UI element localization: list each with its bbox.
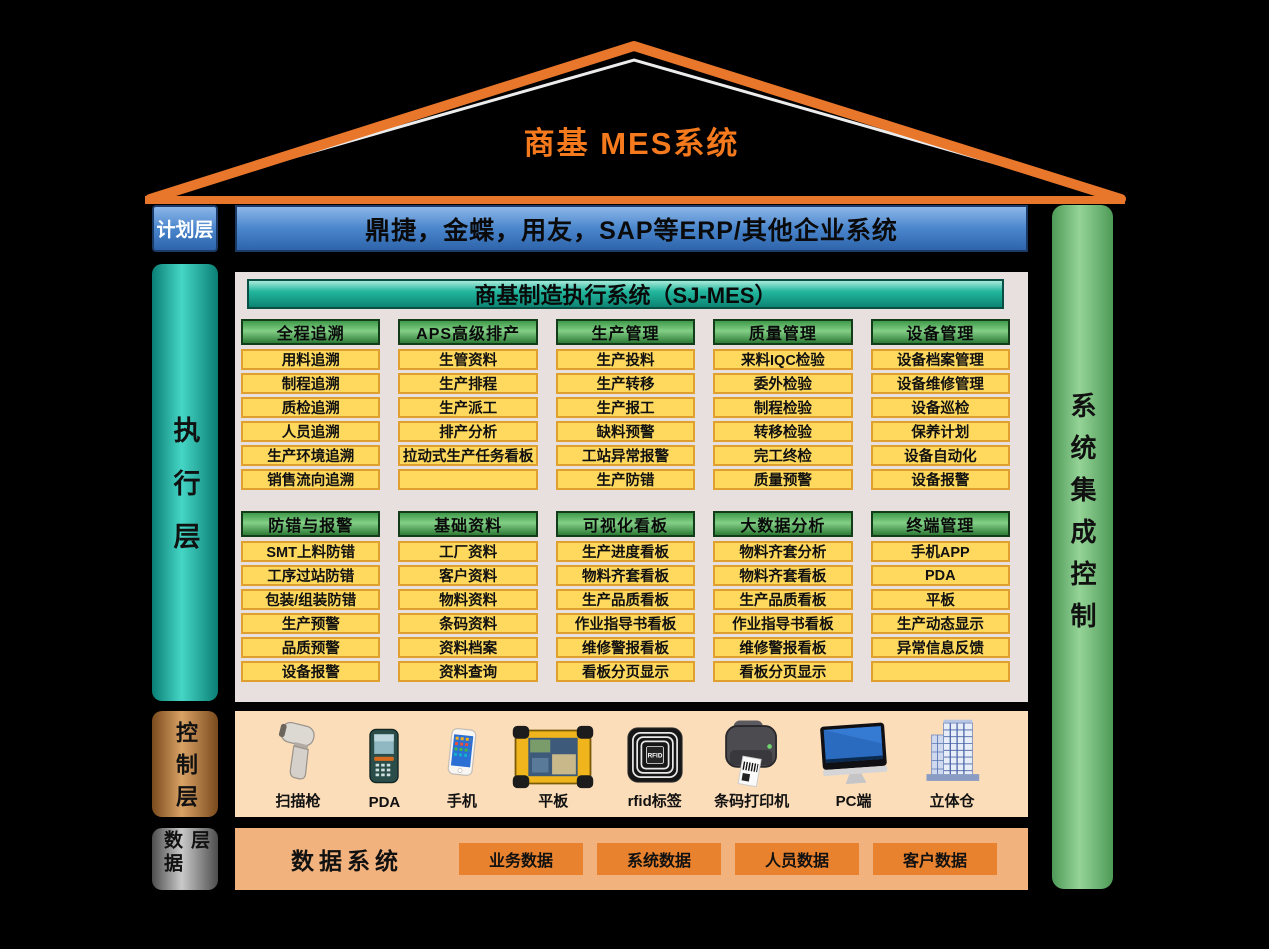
module-item: 来料IQC检验 [713,349,852,370]
module-item: 条码资料 [398,613,537,634]
module-item: 设备自动化 [871,445,1010,466]
rfid-icon: RFID [621,715,689,789]
diagram-title: 商基 MES系统 [235,118,1028,163]
data-system-row: 数据系统 业务数据 系统数据 人员数据 客户数据 [235,828,1028,890]
svg-text:RFID: RFID [647,753,662,760]
module-item: 生产排程 [398,373,537,394]
module-group-error-proofing: 防错与报警 SMT上料防错 工序过站防错 包装/组装防错 生产预警 品质预警 设… [241,511,380,685]
mes-architecture-diagram: 商基 MES系统 计划层 执行层 控制层 数据层 系统集成控制 鼎捷，金蝶，用友… [0,0,1269,949]
pda-icon [356,719,412,793]
module-item: 用料追溯 [241,349,380,370]
module-group-header: 全程追溯 [241,319,380,345]
module-item: 生产预警 [241,613,380,634]
erp-systems-bar: 鼎捷，金蝶，用友，SAP等ERP/其他企业系统 [235,205,1028,252]
module-item: 销售流向追溯 [241,469,380,490]
module-group-big-data: 大数据分析 物料齐套分析 物料齐套看板 生产品质看板 作业指导书看板 维修警报看… [713,511,852,685]
module-item: 设备巡检 [871,397,1010,418]
module-item: 完工终检 [713,445,852,466]
device-phone: 手机 [438,715,486,811]
barcode-printer-icon [715,715,789,789]
scanner-icon [265,715,331,789]
module-item: 客户资料 [398,565,537,586]
module-item: 物料齐套看板 [556,565,695,586]
module-item: 质检追溯 [241,397,380,418]
layer-control-text: 控制层 [169,721,201,817]
erp-systems-text: 鼎捷，金蝶，用友，SAP等ERP/其他企业系统 [365,211,898,247]
module-item: 维修警报看板 [713,637,852,658]
layer-execute-text: 执行层 [166,416,205,575]
data-system-title: 数据系统 [291,842,403,876]
module-group-header: 质量管理 [713,319,852,345]
module-item: 看板分页显示 [713,661,852,682]
data-box-business: 业务数据 [459,843,583,875]
module-item: 工厂资料 [398,541,537,562]
module-item: 生产进度看板 [556,541,695,562]
tablet-icon [511,715,595,789]
layer-data-text: 数据层 [158,830,212,892]
module-item: 生产防错 [556,469,695,490]
layer-data-label: 数据层 [152,828,218,890]
module-item: 设备报警 [871,469,1010,490]
module-item: 平板 [871,589,1010,610]
module-group-dashboards: 可视化看板 生产进度看板 物料齐套看板 生产品质看板 作业指导书看板 维修警报看… [556,511,695,685]
data-box-personnel: 人员数据 [735,843,859,875]
layer-plan-text: 计划层 [156,215,213,242]
module-item: 包装/组装防错 [241,589,380,610]
module-item: 工站异常报警 [556,445,695,466]
layer-execute-label: 执行层 [152,264,218,701]
module-item: 物料齐套分析 [713,541,852,562]
data-boxes: 业务数据 系统数据 人员数据 客户数据 [459,843,997,875]
module-item: 制程追溯 [241,373,380,394]
device-label: PDA [369,794,401,811]
module-group-production: 生产管理 生产投料 生产转移 生产报工 缺料预警 工站异常报警 生产防错 [556,319,695,493]
module-item: 委外检验 [713,373,852,394]
device-pc: PC端 [815,715,893,811]
module-item: 异常信息反馈 [871,637,1010,658]
system-integration-text: 系统集成控制 [1064,392,1101,644]
module-group-master-data: 基础资料 工厂资料 客户资料 物料资料 条码资料 资料档案 资料查询 [398,511,537,685]
module-item: 生产报工 [556,397,695,418]
module-item: 质量预警 [713,469,852,490]
module-item: 看板分页显示 [556,661,695,682]
module-item: 工序过站防错 [241,565,380,586]
module-item: 排产分析 [398,421,537,442]
pc-icon [815,715,893,789]
module-item: 拉动式生产任务看板 [398,445,537,466]
module-item: PDA [871,565,1010,586]
module-item: 维修警报看板 [556,637,695,658]
device-label: 立体仓 [929,790,974,811]
module-item: 人员追溯 [241,421,380,442]
module-item: 物料齐套看板 [713,565,852,586]
module-item: 手机APP [871,541,1010,562]
control-devices-row: 扫描枪 PDA [235,711,1028,817]
module-item: 制程检验 [713,397,852,418]
module-group-header: 防错与报警 [241,511,380,537]
device-label: 平板 [538,790,568,811]
device-warehouse: 立体仓 [918,715,986,811]
module-item: 生管资料 [398,349,537,370]
module-item: 转移检验 [713,421,852,442]
system-integration-bar: 系统集成控制 [1052,205,1113,889]
warehouse-icon [918,715,986,789]
module-item: 设备档案管理 [871,349,1010,370]
module-item [871,661,1010,682]
module-item: 作业指导书看板 [556,613,695,634]
module-item: 缺料预警 [556,421,695,442]
device-label: PC端 [836,790,872,811]
device-tablet: 平板 [511,715,595,811]
module-grid-row1: 全程追溯 用料追溯 制程追溯 质检追溯 人员追溯 生产环境追溯 销售流向追溯 A… [241,319,1010,493]
module-group-header: 基础资料 [398,511,537,537]
module-item: 作业指导书看板 [713,613,852,634]
module-group-header: 终端管理 [871,511,1010,537]
module-grid-row2: 防错与报警 SMT上料防错 工序过站防错 包装/组装防错 生产预警 品质预警 设… [241,511,1010,685]
layer-plan-label: 计划层 [152,205,218,252]
module-item: 设备维修管理 [871,373,1010,394]
module-item: 生产转移 [556,373,695,394]
module-group-header: 大数据分析 [713,511,852,537]
module-item: 生产动态显示 [871,613,1010,634]
data-box-system: 系统数据 [597,843,721,875]
module-group-quality: 质量管理 来料IQC检验 委外检验 制程检验 转移检验 完工终检 质量预警 [713,319,852,493]
layer-control-label: 控制层 [152,711,218,817]
device-label: rfid标签 [628,790,682,811]
module-group-aps: APS高级排产 生管资料 生产排程 生产派工 排产分析 拉动式生产任务看板 [398,319,537,493]
module-item: 品质预警 [241,637,380,658]
roof-outline [0,0,1269,230]
module-item [398,469,537,490]
mes-panel: 商基制造执行系统（SJ-MES） 全程追溯 用料追溯 制程追溯 质检追溯 人员追… [235,272,1028,702]
phone-icon [438,715,486,789]
module-item: 生产环境追溯 [241,445,380,466]
data-box-customer: 客户数据 [873,843,997,875]
module-item: 资料查询 [398,661,537,682]
module-item: 保养计划 [871,421,1010,442]
device-pda: PDA [356,719,412,811]
module-item: 生产品质看板 [556,589,695,610]
module-group-equipment: 设备管理 设备档案管理 设备维修管理 设备巡检 保养计划 设备自动化 设备报警 [871,319,1010,493]
module-group-header: 可视化看板 [556,511,695,537]
module-item: 生产投料 [556,349,695,370]
module-group-traceability: 全程追溯 用料追溯 制程追溯 质检追溯 人员追溯 生产环境追溯 销售流向追溯 [241,319,380,493]
module-item: 资料档案 [398,637,537,658]
module-item: 物料资料 [398,589,537,610]
module-group-terminals: 终端管理 手机APP PDA 平板 生产动态显示 异常信息反馈 [871,511,1010,685]
device-rfid: RFID rfid标签 [621,715,689,811]
mes-panel-header: 商基制造执行系统（SJ-MES） [247,279,1004,309]
module-group-header: 设备管理 [871,319,1010,345]
module-item: 设备报警 [241,661,380,682]
device-scanner: 扫描枪 [265,715,331,811]
device-label: 扫描枪 [275,790,320,811]
module-item: SMT上料防错 [241,541,380,562]
module-group-header: APS高级排产 [398,319,537,345]
module-item: 生产派工 [398,397,537,418]
device-barcode-printer: 条码打印机 [714,715,789,811]
module-group-header: 生产管理 [556,319,695,345]
device-label: 手机 [447,790,477,811]
module-item: 生产品质看板 [713,589,852,610]
device-label: 条码打印机 [714,790,789,811]
